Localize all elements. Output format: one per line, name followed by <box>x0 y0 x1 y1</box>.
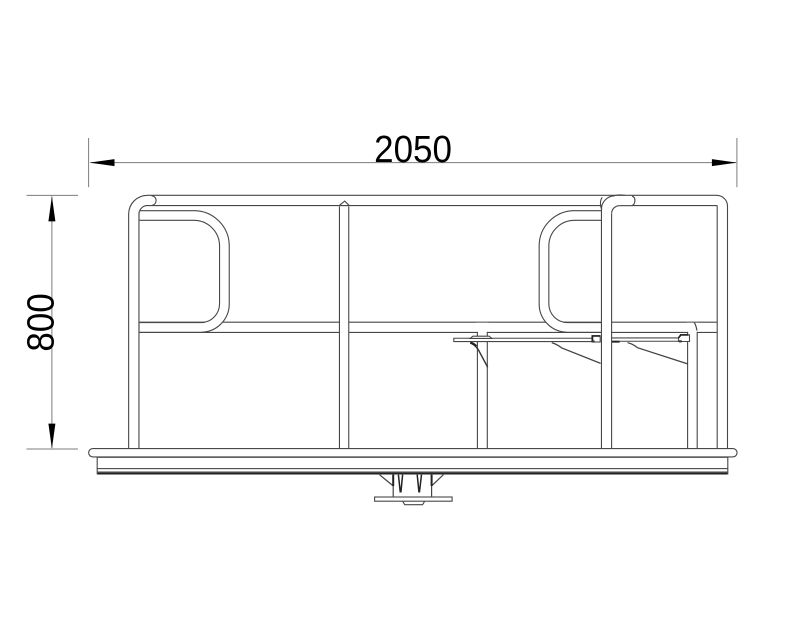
svg-text:2050: 2050 <box>374 128 452 171</box>
svg-text:800: 800 <box>19 293 62 351</box>
